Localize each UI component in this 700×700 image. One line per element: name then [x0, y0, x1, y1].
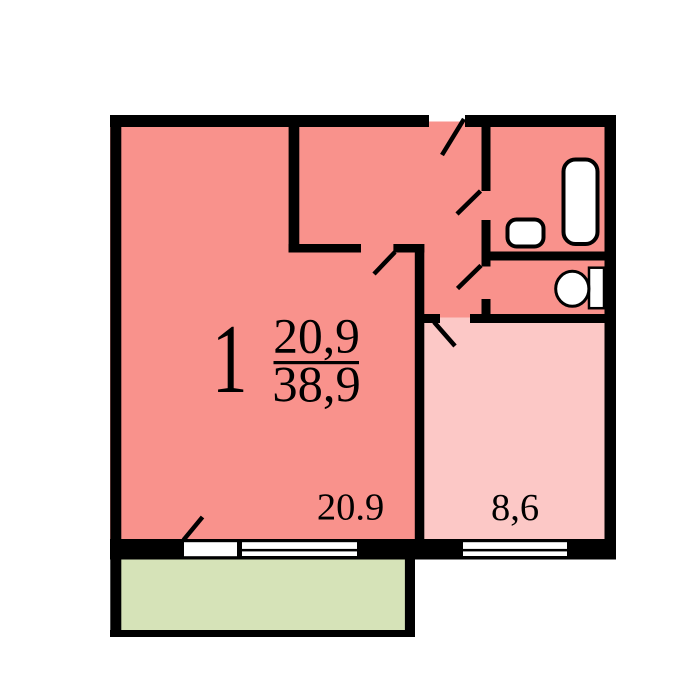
svg-text:38,9: 38,9 — [272, 357, 360, 413]
svg-text:20.9: 20.9 — [317, 487, 384, 529]
svg-text:8,6: 8,6 — [491, 487, 539, 529]
svg-text:1: 1 — [212, 304, 248, 414]
svg-text:20,9: 20,9 — [273, 309, 360, 364]
